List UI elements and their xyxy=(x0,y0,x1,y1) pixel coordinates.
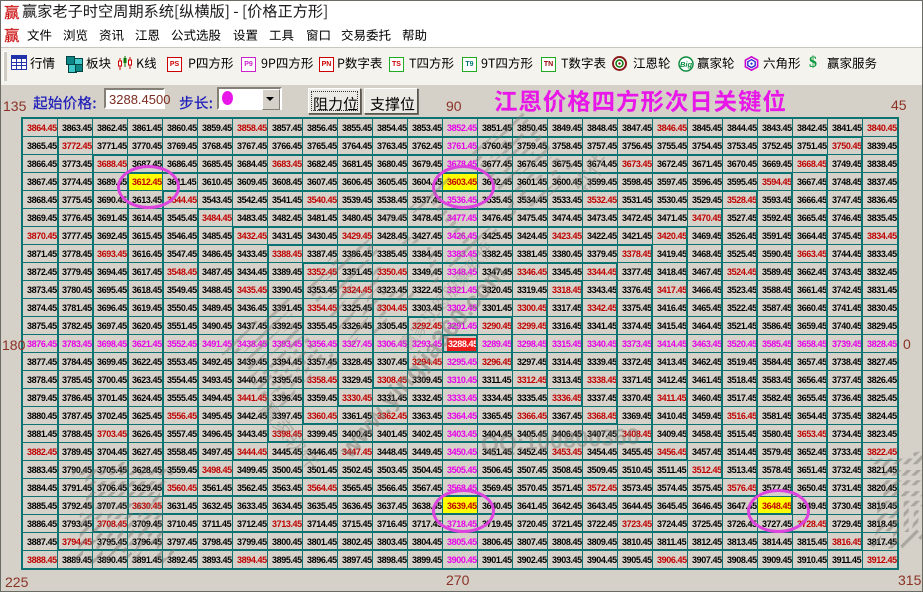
svg-text:Big: Big xyxy=(680,60,693,69)
